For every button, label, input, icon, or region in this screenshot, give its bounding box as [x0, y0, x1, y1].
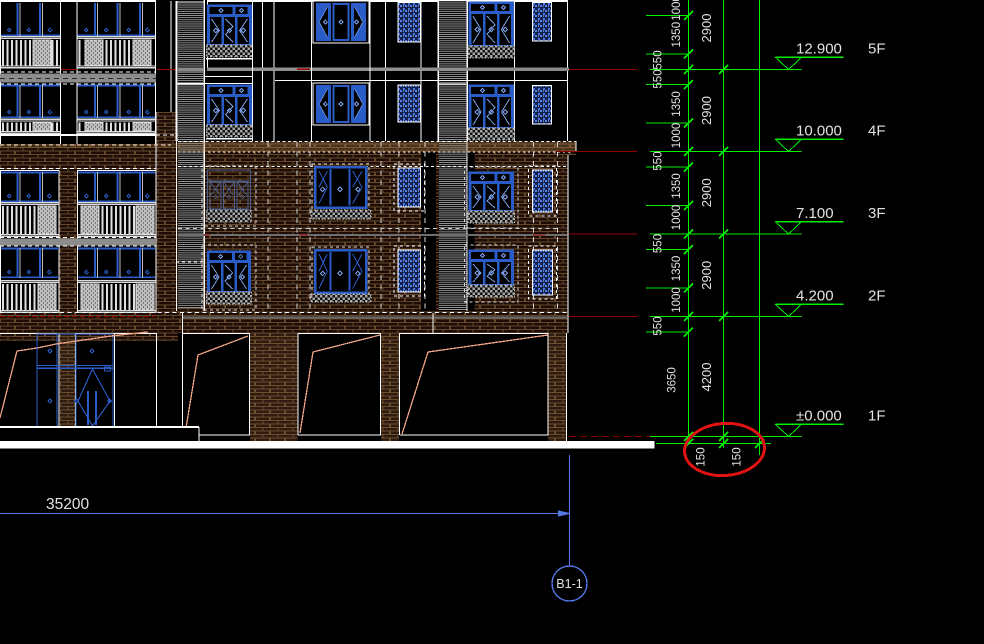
svg-text:550: 550: [653, 50, 665, 69]
svg-text:35200: 35200: [46, 496, 89, 513]
svg-text:±0.000: ±0.000: [796, 408, 842, 425]
svg-text:1350: 1350: [671, 256, 683, 282]
svg-text:2900: 2900: [699, 14, 714, 43]
svg-text:5F: 5F: [868, 41, 886, 58]
svg-text:1000: 1000: [671, 0, 683, 21]
svg-text:150: 150: [696, 447, 708, 466]
svg-text:1000: 1000: [671, 123, 683, 149]
svg-text:1350: 1350: [671, 173, 683, 199]
svg-text:2900: 2900: [699, 178, 714, 207]
svg-text:1F: 1F: [868, 408, 886, 425]
svg-text:550: 550: [653, 69, 665, 88]
svg-text:3F: 3F: [868, 205, 886, 222]
svg-text:550: 550: [653, 316, 665, 335]
svg-text:2900: 2900: [699, 261, 714, 290]
svg-text:3650: 3650: [667, 367, 679, 393]
svg-text:1000: 1000: [671, 287, 683, 313]
svg-text:1350: 1350: [671, 22, 683, 48]
svg-text:2900: 2900: [699, 96, 714, 125]
svg-text:4.200: 4.200: [796, 288, 834, 305]
svg-text:4200: 4200: [699, 363, 714, 392]
svg-text:4F: 4F: [868, 123, 886, 140]
svg-text:7.100: 7.100: [796, 205, 834, 222]
svg-text:150: 150: [732, 447, 744, 466]
svg-text:1350: 1350: [671, 91, 683, 117]
svg-text:550: 550: [653, 151, 665, 170]
svg-text:1000: 1000: [671, 205, 683, 231]
svg-text:B1-1: B1-1: [556, 577, 582, 591]
svg-text:12.900: 12.900: [796, 41, 842, 58]
svg-text:2F: 2F: [868, 288, 886, 305]
svg-text:550: 550: [653, 234, 665, 253]
svg-text:10.000: 10.000: [796, 123, 842, 140]
